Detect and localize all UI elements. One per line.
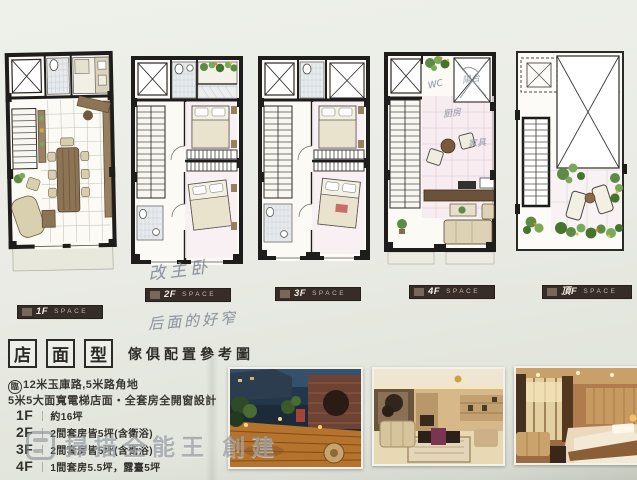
balcony-planter [198,62,238,98]
floor-space-text: SPACE [182,292,216,299]
paper-crease [206,352,218,480]
floor-spec-row-3f: 3F ｜ 2間套房皆5坪(含衛浴) [16,441,153,457]
stairs-icon [12,109,37,169]
floor-number: 頂F [561,287,577,297]
floor-number: 3F [294,289,306,299]
floor-space-text: SPACE [583,289,617,296]
floorplan-2f-drawing [129,54,245,272]
separator: ｜ [37,459,47,474]
floor-space-text: SPACE [312,291,346,298]
separator: ｜ [37,425,47,440]
floor-spec-row-4f: 4F ｜ 1間套房5.5坪，露臺5坪 [16,458,161,474]
floor-label-1f: 1F SPACE [18,306,102,318]
elevator-icon [391,59,421,93]
spec-design-text: 5米5大面寬電梯店面・全套房全開窗設計 [8,395,217,407]
label-chip [547,288,557,296]
floor-label-4f: 4F SPACE [410,286,494,298]
handwritten-kitchen: 厨房 [442,105,462,120]
title-subtitle: 傢俱配置參考圖 [128,344,254,364]
floorplan-roof [511,46,631,262]
handwritten-note-too-narrow: 后面的好窄 [147,307,238,334]
bed-icon [318,178,361,228]
floor-label-3f: 3F SPACE [276,288,360,300]
label-chip [150,291,160,299]
roof-skylight-crossed [557,56,619,168]
floor-number: 1F [36,307,48,317]
spec-line-design: 5米5大面寬電梯店面・全套房全開窗設計 [8,392,217,408]
floor-desc: 約16坪 [50,408,83,423]
bed-icon [188,180,231,230]
label-chip [280,290,290,298]
floor-spec-row-1f: 1F ｜ 約16坪 [16,407,83,423]
floor-label-roof: 頂F SPACE [543,286,631,298]
title-boxed-char: 店 [8,339,37,368]
floorplan-1f [3,49,120,281]
floorplan-2f [129,54,245,272]
stairs-icon [523,118,549,206]
floor-desc: 1間套房5.5坪，露臺5坪 [50,459,160,474]
title-boxed-char: 型 [84,339,113,368]
spec-line-road: 臨12米玉庫路,5米路角地 [8,376,138,394]
floor-id: 2F [16,424,33,440]
handwritten-furniture: 家具 [467,135,486,150]
roof-deck-night-photo-art [230,369,361,467]
stairs-icon [264,106,292,198]
void-crossed-box [330,63,364,98]
separator: ｜ [37,408,47,423]
elevator-icon [12,59,42,93]
floorplan-1f-drawing [3,49,120,281]
living-room-photo [372,367,505,466]
bathroom [172,62,196,98]
floor-desc: 2間套房皆5坪(含衛浴) [50,442,153,457]
title-boxed-char: 面 [46,339,75,368]
bathroom [300,62,324,98]
floor-id: 4F [16,458,33,474]
plant-icon [397,219,407,229]
scanned-brochure-page: 1F SPACE 2F SPACE 3F SPACE 4F SPACE 頂F S… [0,0,637,480]
floor-space-text: SPACE [54,309,88,316]
elevator-icon [138,63,167,95]
bathroom [47,58,70,94]
floorplan-3f [256,54,372,268]
coffee-table [450,204,476,216]
separator: ｜ [37,442,47,457]
floor-space-text: SPACE [446,289,480,296]
floor-number: 2F [164,290,176,300]
small-bathroom [264,204,292,242]
bedroom-photo [514,366,637,465]
label-chip [414,288,424,296]
roof-deck-night-photo [228,367,363,469]
floor-spec-row-2f: 2F ｜ 2間套房皆5坪(含衛浴) [16,424,153,440]
floor-desc: 2間套房皆5坪(含衛浴) [50,425,153,440]
label-chip [22,308,32,316]
floorplan-3f-drawing [256,54,372,268]
spec-road-text: 12米玉庫路,5米路角地 [23,379,138,391]
floor-id: 3F [16,441,33,457]
living-room-photo-art [374,369,503,464]
elevator-icon [265,63,294,95]
small-bathroom [137,206,163,240]
stairs-icon [137,106,165,198]
bedroom-photo-art [516,368,637,463]
floor-number: 4F [428,287,440,297]
stairs-icon [390,100,420,208]
floor-id: 1F [16,407,33,423]
floorplan-roof-drawing [511,46,631,262]
floor-label-2f: 2F SPACE [146,289,230,301]
kitchen [73,57,110,94]
